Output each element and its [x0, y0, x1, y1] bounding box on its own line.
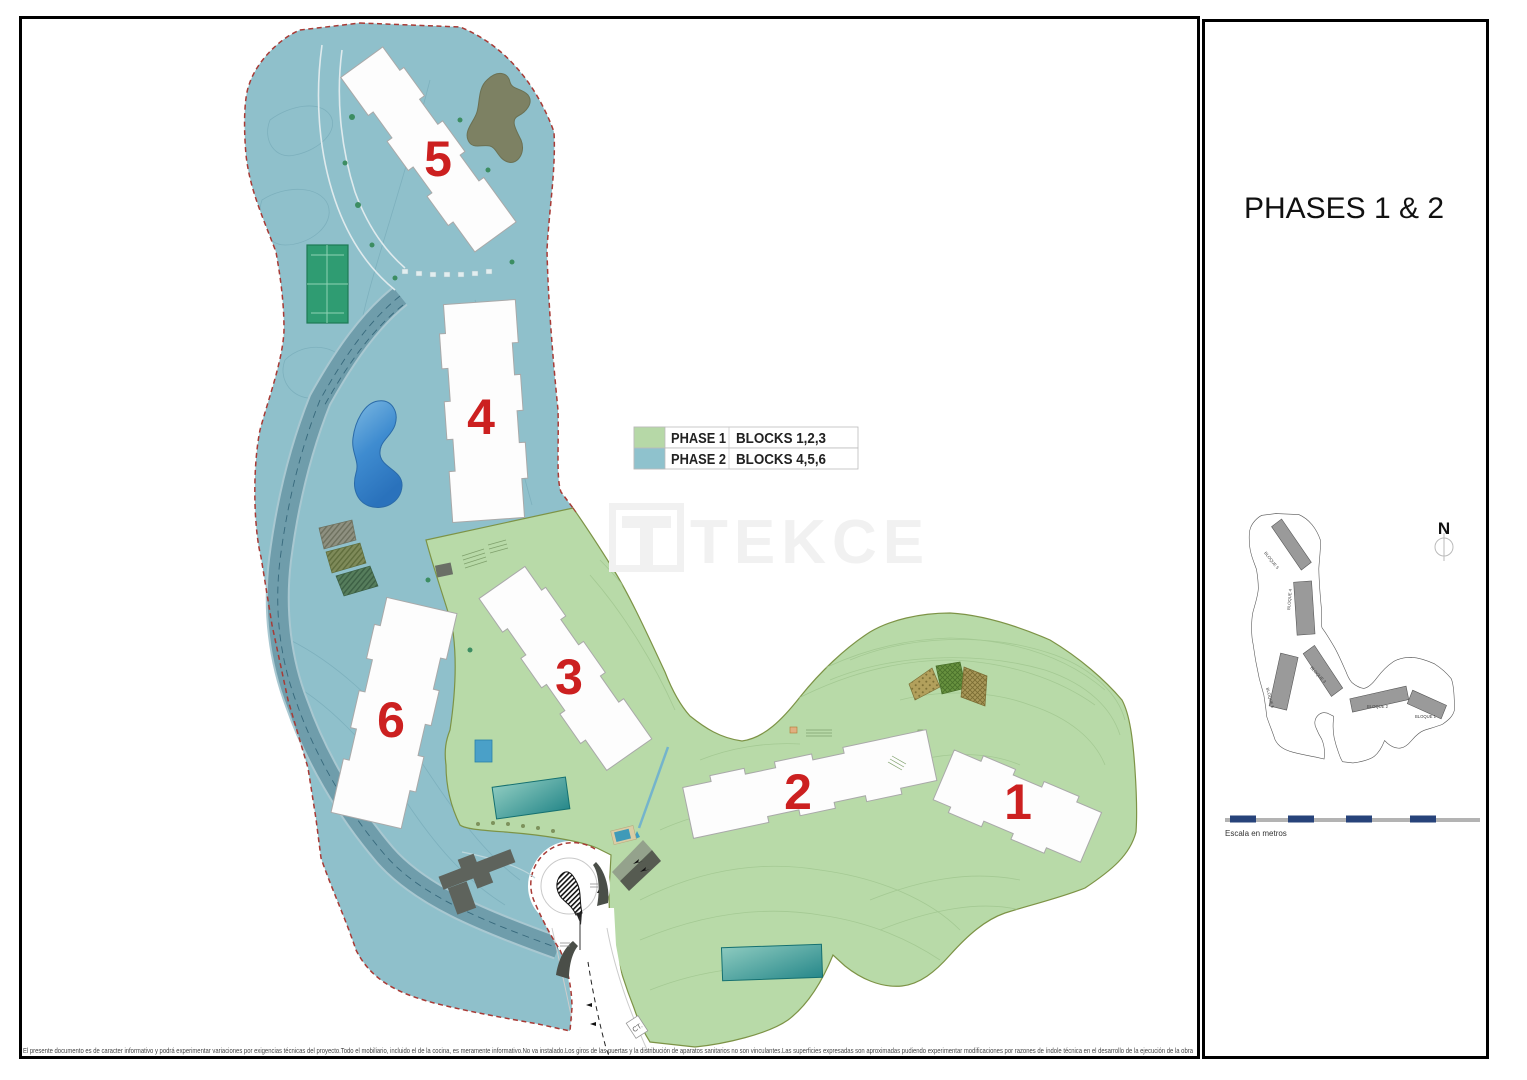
svg-text:TEKCE: TEKCE	[690, 508, 930, 577]
svg-text:PHASES 1 & 2: PHASES 1 & 2	[1244, 192, 1444, 225]
svg-text:BLOQUE 1: BLOQUE 1	[1415, 714, 1437, 719]
svg-text:El presente documento es de ca: El presente documento es de caracter inf…	[23, 1046, 1194, 1055]
svg-text:Escala en metros: Escala en metros	[1225, 829, 1287, 838]
svg-text:BLOCKS 1,2,3: BLOCKS 1,2,3	[736, 431, 826, 447]
svg-text:5: 5	[424, 131, 452, 187]
svg-text:1: 1	[1004, 774, 1032, 830]
svg-text:4: 4	[467, 389, 495, 445]
svg-text:6: 6	[377, 692, 405, 748]
svg-text:2: 2	[784, 764, 812, 820]
svg-text:PHASE 1: PHASE 1	[671, 431, 726, 447]
svg-text:BLOCKS 4,5,6: BLOCKS 4,5,6	[736, 452, 826, 468]
svg-text:PHASE 2: PHASE 2	[671, 452, 726, 468]
svg-text:3: 3	[555, 649, 583, 705]
svg-text:BLOQUE 2: BLOQUE 2	[1367, 704, 1389, 709]
